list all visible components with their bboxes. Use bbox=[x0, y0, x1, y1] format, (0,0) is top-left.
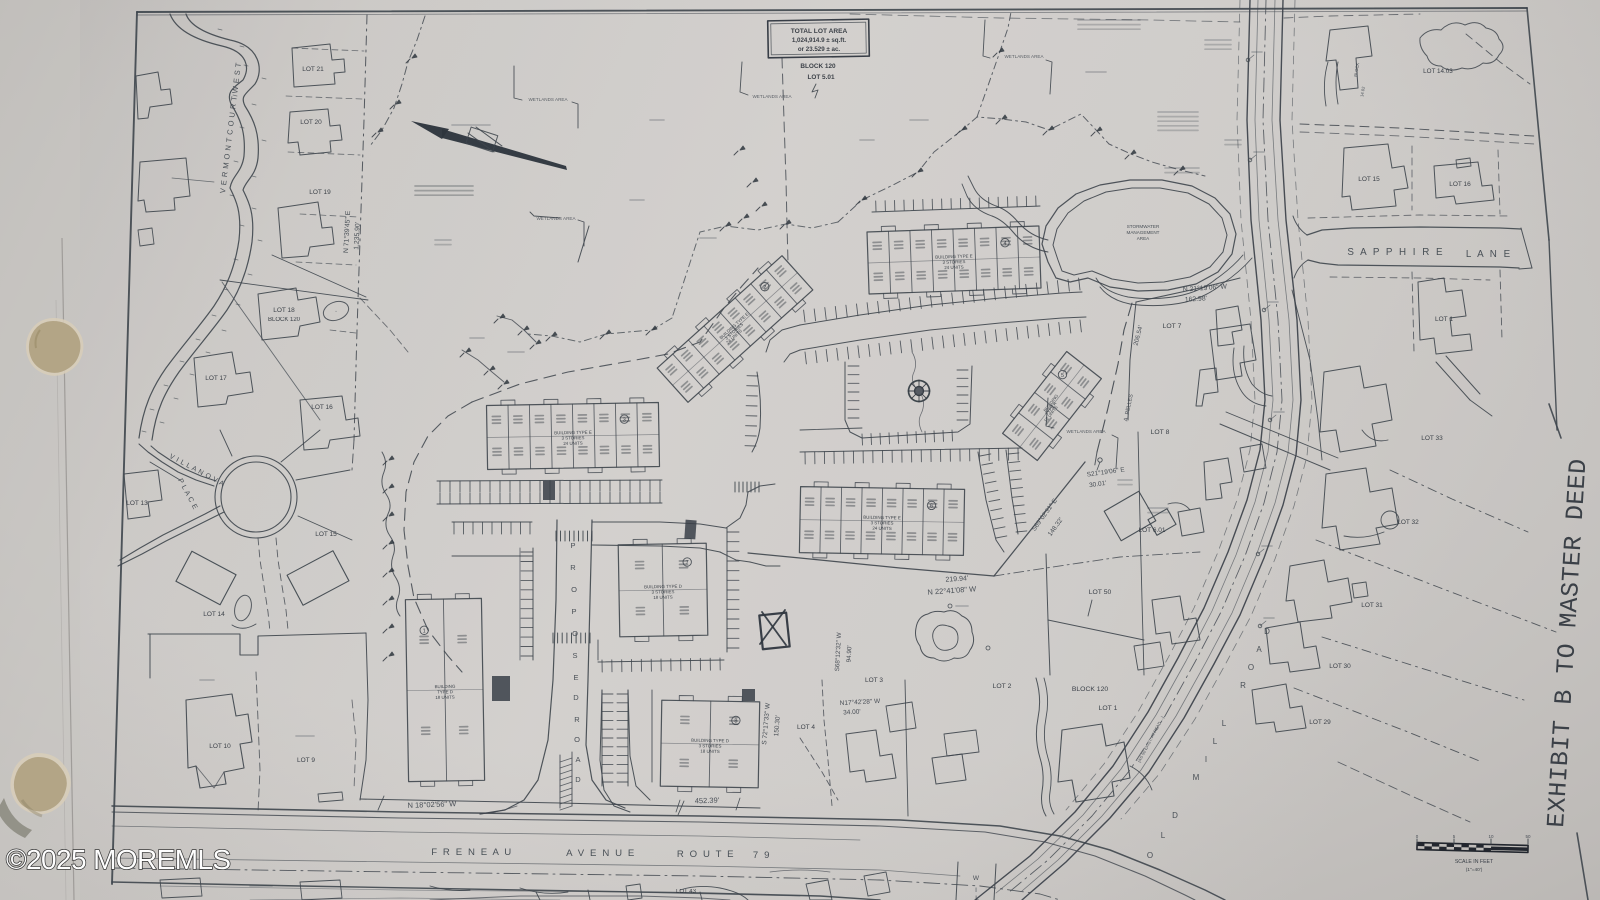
svg-text:L: L bbox=[1213, 737, 1218, 746]
svg-text:LOT 20: LOT 20 bbox=[300, 119, 322, 126]
svg-text:4: 4 bbox=[1003, 241, 1006, 247]
svg-text:L: L bbox=[1161, 831, 1166, 840]
svg-text:D: D bbox=[575, 775, 581, 784]
svg-text:LOT 5.01: LOT 5.01 bbox=[808, 74, 835, 81]
svg-text:LOT 13: LOT 13 bbox=[126, 500, 148, 507]
svg-text:LOT 17: LOT 17 bbox=[205, 375, 227, 382]
svg-text:LOT 29: LOT 29 bbox=[1309, 719, 1331, 726]
svg-text:LOT 31: LOT 31 bbox=[1361, 602, 1383, 609]
svg-text:E: E bbox=[573, 673, 578, 682]
svg-text:R: R bbox=[574, 715, 580, 724]
svg-text:LOT 8: LOT 8 bbox=[1151, 429, 1170, 436]
svg-text:L: L bbox=[975, 895, 979, 900]
svg-text:LOT 10: LOT 10 bbox=[209, 743, 231, 750]
svg-text:LOT 6.01: LOT 6.01 bbox=[1139, 527, 1166, 534]
svg-text:M: M bbox=[1193, 773, 1200, 782]
svg-text:24 UNITS: 24 UNITS bbox=[944, 264, 964, 270]
svg-text:BLOCK 120: BLOCK 120 bbox=[268, 317, 301, 323]
svg-text:LOT 43: LOT 43 bbox=[676, 889, 697, 895]
svg-text:D: D bbox=[573, 693, 579, 702]
svg-text:50: 50 bbox=[1525, 834, 1531, 839]
svg-text:A: A bbox=[1256, 645, 1262, 654]
svg-text:F R E N E A U: F R E N E A U bbox=[431, 847, 513, 858]
svg-text:LOT 50: LOT 50 bbox=[1089, 589, 1112, 596]
svg-text:R: R bbox=[570, 563, 576, 572]
svg-text:18 UNITS: 18 UNITS bbox=[700, 749, 719, 754]
svg-text:3: 3 bbox=[623, 417, 626, 423]
svg-text:WETLANDS AREA: WETLANDS AREA bbox=[752, 94, 792, 99]
svg-text:or 23.529 ± ac.: or 23.529 ± ac. bbox=[798, 46, 841, 53]
svg-text:A V E N U E: A V E N U E bbox=[566, 848, 636, 859]
svg-text:WETLANDS AREA: WETLANDS AREA bbox=[536, 216, 576, 221]
svg-text:O: O bbox=[1248, 663, 1254, 672]
svg-text:(1"=40'): (1"=40') bbox=[1466, 867, 1483, 873]
svg-text:18 UNITS: 18 UNITS bbox=[435, 695, 454, 700]
svg-text:7 9: 7 9 bbox=[753, 850, 771, 861]
svg-text:MANAGEMENT: MANAGEMENT bbox=[1127, 230, 1160, 235]
svg-text:SCALE IN FEET: SCALE IN FEET bbox=[1455, 859, 1494, 865]
svg-text:LOT 4: LOT 4 bbox=[797, 724, 815, 731]
svg-text:WETLANDS AREA: WETLANDS AREA bbox=[1004, 54, 1044, 59]
svg-text:LOT 2: LOT 2 bbox=[993, 683, 1012, 690]
svg-text:LOT 14.03: LOT 14.03 bbox=[1423, 68, 1453, 75]
svg-text:10: 10 bbox=[1488, 834, 1494, 839]
svg-text:LOT 1: LOT 1 bbox=[1435, 316, 1453, 323]
svg-text:LOT 9: LOT 9 bbox=[297, 757, 315, 764]
svg-text:A: A bbox=[575, 755, 580, 764]
svg-text:LOT 16: LOT 16 bbox=[1449, 181, 1471, 188]
svg-text:LOT 15: LOT 15 bbox=[1358, 176, 1380, 183]
svg-text:34.00': 34.00' bbox=[843, 709, 861, 717]
svg-text:LOT 32: LOT 32 bbox=[1397, 519, 1419, 526]
svg-text:O: O bbox=[1147, 851, 1153, 860]
svg-text:S: S bbox=[572, 651, 577, 660]
svg-text:24 UNITS: 24 UNITS bbox=[872, 526, 891, 531]
svg-text:1,024,914.9 ± sq.ft.: 1,024,914.9 ± sq.ft. bbox=[792, 37, 847, 44]
svg-text:©2025 MOREMLS: ©2025 MOREMLS bbox=[6, 844, 230, 875]
svg-text:LOT 3: LOT 3 bbox=[865, 677, 883, 684]
svg-text:◦: ◦ bbox=[335, 309, 337, 315]
svg-text:O: O bbox=[571, 585, 577, 594]
svg-text:1: 1 bbox=[423, 629, 426, 635]
svg-text:BLOCK 120: BLOCK 120 bbox=[1072, 686, 1108, 693]
svg-text:LOT 18: LOT 18 bbox=[273, 307, 295, 314]
svg-text:24 UNITS: 24 UNITS bbox=[563, 441, 582, 446]
svg-text:L: L bbox=[1222, 719, 1227, 728]
svg-text:O: O bbox=[572, 629, 578, 638]
svg-text:STORMWATER: STORMWATER bbox=[1127, 224, 1160, 229]
svg-text:7: 7 bbox=[686, 560, 689, 566]
svg-text:LOT 19: LOT 19 bbox=[309, 189, 331, 196]
svg-text:N 18°02'56" W: N 18°02'56" W bbox=[407, 799, 457, 810]
svg-text:P: P bbox=[571, 607, 576, 616]
svg-text:5: 5 bbox=[1061, 373, 1064, 379]
svg-text:WETLANDS AREA: WETLANDS AREA bbox=[1066, 429, 1106, 434]
svg-text:LOT 16: LOT 16 bbox=[311, 404, 333, 411]
svg-text:AREA: AREA bbox=[1137, 236, 1150, 241]
svg-text:LOT 21: LOT 21 bbox=[302, 66, 324, 73]
svg-text:R O U T E: R O U T E bbox=[677, 849, 735, 860]
svg-text:LOT 1: LOT 1 bbox=[1099, 705, 1118, 712]
svg-text:452.39': 452.39' bbox=[695, 796, 720, 806]
svg-text:6: 6 bbox=[930, 504, 933, 510]
svg-text:I: I bbox=[975, 887, 977, 894]
svg-text:WETLANDS AREA: WETLANDS AREA bbox=[528, 97, 568, 102]
svg-text:LOT 30: LOT 30 bbox=[1329, 663, 1351, 670]
svg-text:S A P P H I R E: S A P P H I R E bbox=[1347, 247, 1444, 258]
svg-text:2: 2 bbox=[763, 285, 766, 291]
svg-text:W: W bbox=[973, 875, 980, 882]
svg-text:R: R bbox=[1240, 681, 1246, 690]
svg-text:LOT 7: LOT 7 bbox=[1163, 323, 1182, 330]
svg-text:TOTAL LOT AREA: TOTAL LOT AREA bbox=[791, 28, 848, 35]
svg-text:L A N E: L A N E bbox=[1466, 249, 1512, 260]
svg-text:LOT 33: LOT 33 bbox=[1421, 435, 1443, 442]
svg-text:O: O bbox=[574, 735, 580, 744]
svg-text:18 UNITS: 18 UNITS bbox=[653, 595, 672, 600]
svg-text:8: 8 bbox=[734, 719, 737, 725]
svg-text:P: P bbox=[570, 541, 575, 550]
svg-text:I: I bbox=[1205, 755, 1207, 764]
svg-text:D: D bbox=[1172, 811, 1178, 820]
svg-text:BLOCK 120: BLOCK 120 bbox=[800, 63, 836, 70]
svg-text:94.90': 94.90' bbox=[846, 645, 854, 662]
svg-text:LOT 14: LOT 14 bbox=[203, 611, 225, 618]
